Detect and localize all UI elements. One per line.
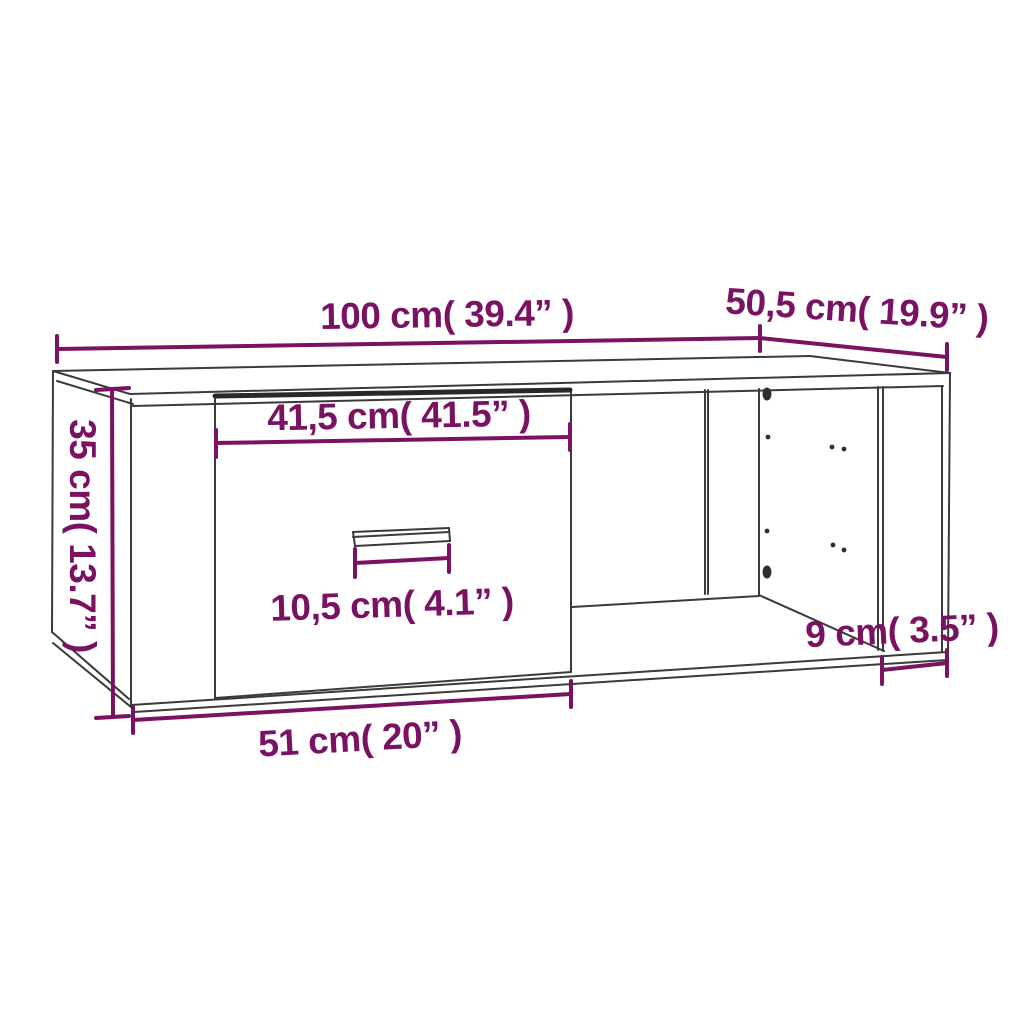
open-compartment xyxy=(572,387,884,651)
furniture-line-drawing xyxy=(0,0,1024,1024)
cam-hole-icon xyxy=(763,566,772,579)
label-side-height: 35 cm( 13.7” ) xyxy=(61,419,103,653)
dimension-lines xyxy=(57,326,947,733)
pin-hole-icon xyxy=(766,435,771,440)
cam-hole-icon xyxy=(763,388,772,401)
pin-hole-icon xyxy=(830,445,835,450)
drawer-handle xyxy=(353,528,450,546)
pin-hole-icon xyxy=(765,529,770,534)
pin-hole-icon xyxy=(831,543,836,548)
label-top-width: 100 cm( 39.4” ) xyxy=(320,292,574,338)
label-handle-width: 10,5 cm( 4.1” ) xyxy=(270,580,515,630)
dim-line-handle-width xyxy=(355,545,449,577)
pin-hole-icon xyxy=(842,548,847,553)
label-drawer-front-width: 41,5 cm( 41.5” ) xyxy=(267,393,531,440)
label-right-clearance: 9 cm( 3.5” ) xyxy=(804,606,999,656)
base-bottom xyxy=(131,652,947,712)
dim-line-top-depth xyxy=(760,338,947,370)
shelf-pin-holes xyxy=(763,388,847,579)
dimension-diagram: 100 cm( 39.4” ) 50,5 cm( 19.9” ) 35 cm( … xyxy=(0,0,1024,1024)
pin-hole-icon xyxy=(842,447,847,452)
